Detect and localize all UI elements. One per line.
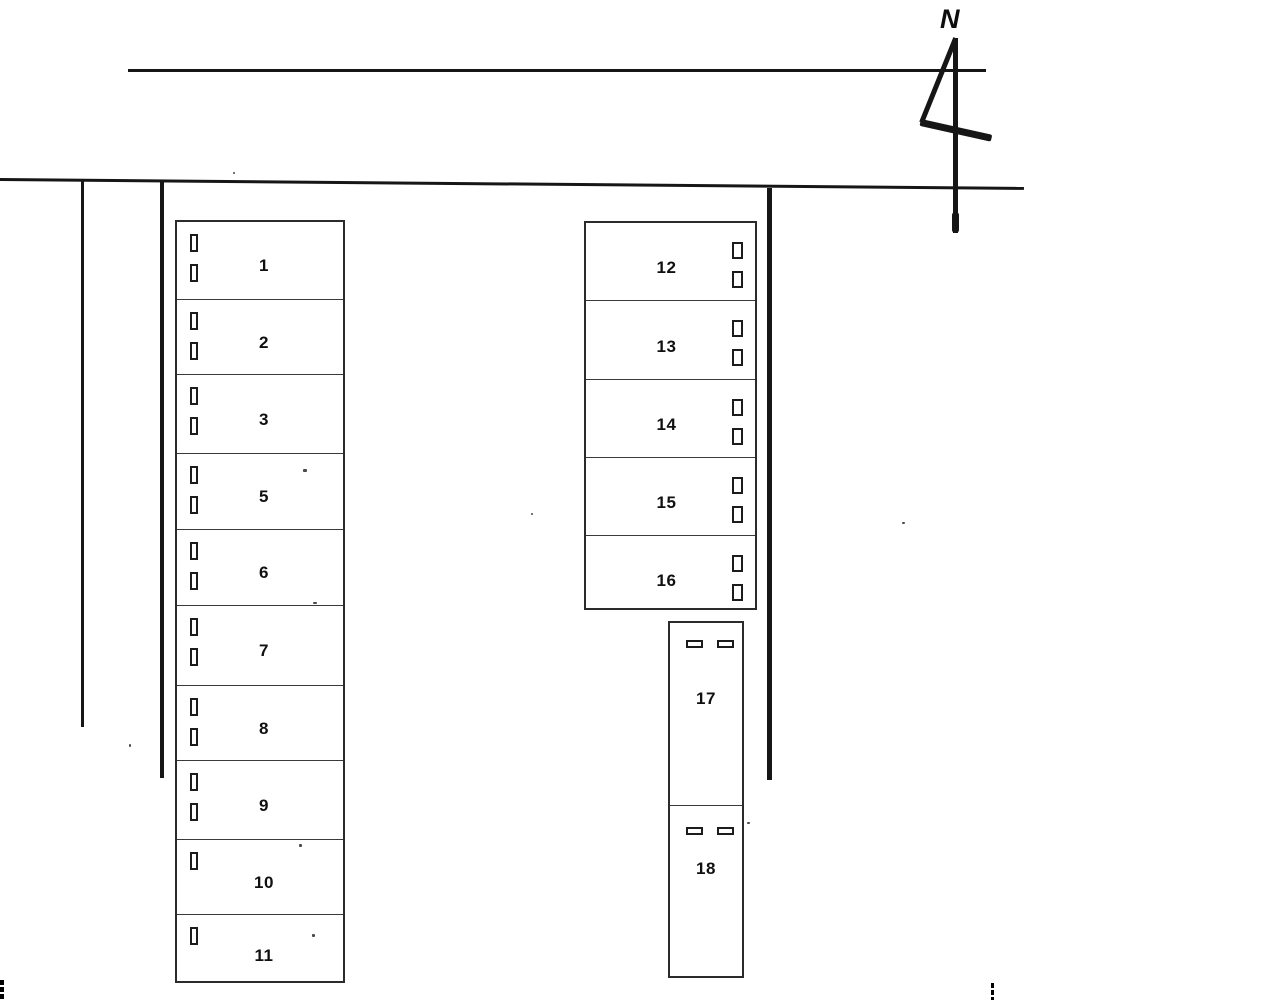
door-marker-icon xyxy=(190,387,198,405)
unit-row: 11 xyxy=(177,914,343,985)
door-marker-icon xyxy=(190,542,198,560)
unit-number: 16 xyxy=(586,572,755,589)
unit-number: 6 xyxy=(177,564,343,581)
unit-row: 8 xyxy=(177,685,343,760)
site-plan-canvas: N 123567891011 1213141516 1718 xyxy=(0,0,1278,1001)
unit-number: 11 xyxy=(177,947,343,964)
unit-number: 2 xyxy=(177,334,343,351)
door-marker-icon xyxy=(190,234,198,252)
unit-row: 14 xyxy=(586,379,755,457)
door-marker-icon xyxy=(190,698,198,716)
door-marker-icon xyxy=(732,477,743,494)
unit-number: 18 xyxy=(670,860,742,877)
door-marker-icon xyxy=(717,827,734,835)
door-marker-icon xyxy=(732,399,743,416)
door-marker-icon xyxy=(190,618,198,636)
unit-row: 17 xyxy=(670,623,742,805)
door-marker-icon xyxy=(732,320,743,337)
scan-speck xyxy=(902,522,905,524)
unit-number: 10 xyxy=(177,874,343,891)
north-label: N xyxy=(940,6,976,33)
door-marker-icon xyxy=(686,640,703,648)
unit-number: 1 xyxy=(177,257,343,274)
unit-number: 14 xyxy=(586,416,755,433)
unit-number: 17 xyxy=(670,690,742,707)
unit-number: 9 xyxy=(177,797,343,814)
page-edge-mark-left xyxy=(0,980,4,1000)
door-marker-icon xyxy=(190,312,198,330)
unit-block-left: 123567891011 xyxy=(175,220,345,983)
scan-speck xyxy=(303,469,307,472)
lane-edge-line-right-block xyxy=(767,188,772,780)
unit-block-lower: 1718 xyxy=(668,621,744,978)
scan-speck xyxy=(312,934,315,937)
door-marker-icon xyxy=(717,640,734,648)
unit-row: 12 xyxy=(586,223,755,300)
door-marker-icon xyxy=(190,927,198,945)
unit-number: 3 xyxy=(177,411,343,428)
scan-speck xyxy=(299,844,302,847)
unit-row: 10 xyxy=(177,839,343,914)
unit-number: 12 xyxy=(586,259,755,276)
lane-edge-line-west xyxy=(81,181,84,727)
unit-row: 16 xyxy=(586,535,755,612)
door-marker-icon xyxy=(732,555,743,572)
unit-row: 7 xyxy=(177,605,343,685)
unit-row: 2 xyxy=(177,299,343,374)
scan-speck xyxy=(233,172,235,174)
unit-row: 13 xyxy=(586,300,755,379)
scan-speck xyxy=(747,822,750,824)
unit-number: 8 xyxy=(177,720,343,737)
unit-row: 3 xyxy=(177,374,343,453)
unit-block-right: 1213141516 xyxy=(584,221,757,610)
scan-speck xyxy=(313,602,317,604)
unit-row: 9 xyxy=(177,760,343,839)
unit-row: 5 xyxy=(177,453,343,529)
door-marker-icon xyxy=(190,852,198,870)
page-edge-mark-right xyxy=(991,983,994,1000)
unit-number: 5 xyxy=(177,488,343,505)
unit-number: 13 xyxy=(586,338,755,355)
unit-row: 1 xyxy=(177,222,343,299)
unit-number: 7 xyxy=(177,642,343,659)
door-marker-icon xyxy=(732,242,743,259)
door-marker-icon xyxy=(190,773,198,791)
lane-edge-line-left-block xyxy=(160,181,164,778)
main-road-line xyxy=(0,178,1024,190)
scan-speck xyxy=(531,513,533,515)
door-marker-icon xyxy=(686,827,703,835)
unit-row: 15 xyxy=(586,457,755,535)
unit-row: 6 xyxy=(177,529,343,605)
scan-speck xyxy=(129,744,131,747)
unit-row: 18 xyxy=(670,805,742,980)
unit-number: 15 xyxy=(586,494,755,511)
upper-road-line xyxy=(128,69,986,72)
door-marker-icon xyxy=(190,466,198,484)
